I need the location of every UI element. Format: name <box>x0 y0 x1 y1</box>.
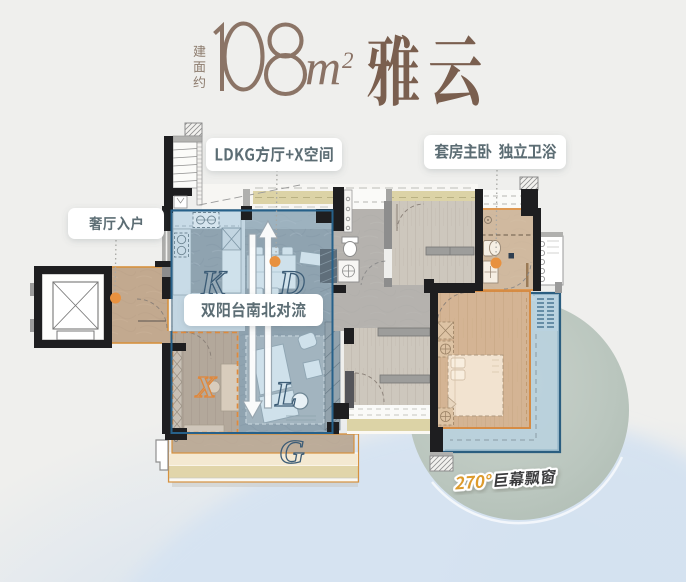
svg-text:m: m <box>305 39 341 95</box>
svg-text:X: X <box>195 369 218 404</box>
svg-text:G: G <box>280 434 305 471</box>
svg-text:2: 2 <box>342 48 354 73</box>
svg-text:L: L <box>274 374 297 414</box>
